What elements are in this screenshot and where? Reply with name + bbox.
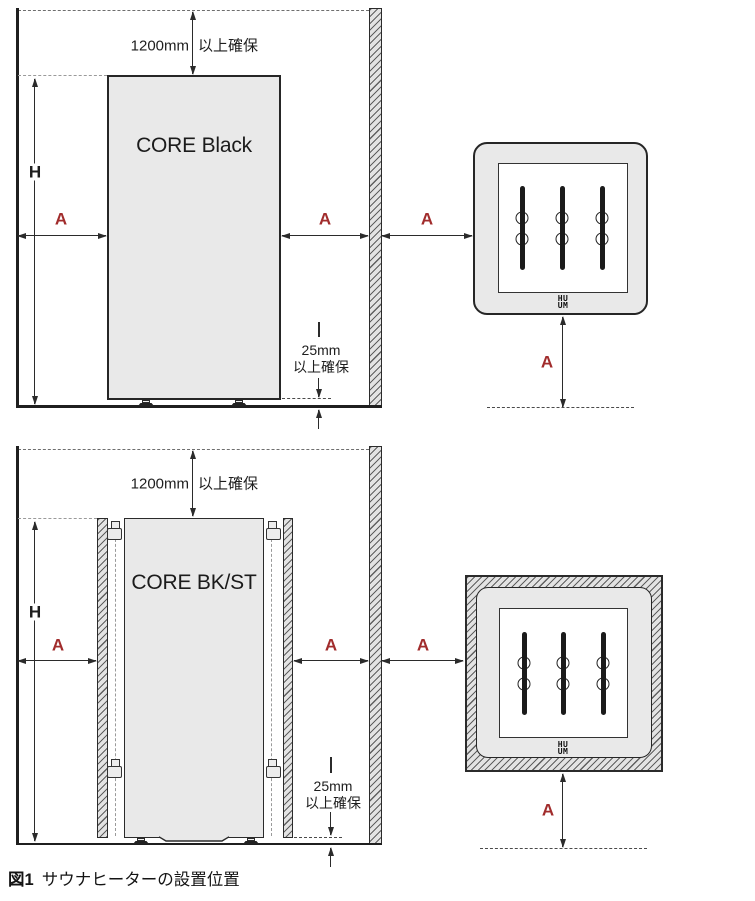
clearance-label: A — [325, 637, 337, 654]
room-left-wall — [16, 446, 19, 845]
top-clearance-arrow — [192, 12, 193, 74]
foot-base — [133, 841, 149, 844]
clearance-arrow-wall-left — [18, 235, 106, 236]
heater-foot — [231, 400, 247, 407]
air-gap-line-right — [271, 524, 272, 836]
partition-wall-hatched — [369, 8, 382, 408]
heating-element — [520, 186, 525, 270]
heater-foot — [138, 400, 154, 407]
foot-stem — [235, 400, 243, 404]
floor-line — [16, 405, 382, 408]
bracket-block — [266, 766, 281, 778]
mounting-bracket — [265, 521, 281, 541]
heater-base-notch — [158, 836, 230, 844]
floor-clearance-value: 25mm — [302, 343, 341, 357]
heater-outline — [107, 75, 281, 400]
floor-clearance-leader — [330, 757, 331, 773]
air-gap-line-left — [115, 524, 116, 836]
foot-base — [243, 841, 259, 844]
clearance-label: A — [542, 802, 554, 819]
top-clearance-value: 1200mm — [131, 39, 189, 54]
floor-clearance-line — [282, 398, 331, 399]
heating-element — [601, 632, 606, 715]
foot-base — [231, 403, 247, 406]
heater-top-level-line — [18, 518, 97, 519]
clearance-arrow-wall-right — [294, 660, 368, 661]
foot-stem — [137, 838, 145, 841]
clearance-label: A — [417, 637, 429, 654]
height-dimension-arrow — [34, 522, 35, 841]
floor-clearance-line — [294, 837, 342, 838]
clearance-label: A — [55, 211, 67, 228]
side-shield-left — [97, 518, 108, 838]
foot-base — [138, 403, 154, 406]
top-clearance-arrow — [192, 451, 193, 516]
bracket-block — [107, 528, 122, 540]
height-dimension-label: H — [26, 604, 44, 621]
clearance-label: A — [421, 211, 433, 228]
floor-clearance-leader — [318, 322, 319, 337]
front-clearance-arrow — [562, 774, 563, 847]
partition-wall-hatched — [369, 446, 382, 845]
height-dimension-label: H — [26, 164, 44, 181]
heater-top-level-line — [18, 75, 107, 76]
bracket-block — [266, 528, 281, 540]
heater-foot — [133, 838, 149, 844]
foot-stem — [142, 400, 150, 404]
bench-edge-line — [487, 407, 634, 408]
top-clearance-note: 以上確保 — [198, 39, 258, 54]
clearance-arrow-wall-right — [282, 235, 368, 236]
floor-clearance-note: 以上確保 — [305, 796, 361, 810]
side-shield-right — [283, 518, 294, 838]
clearance-label: A — [541, 354, 553, 371]
huum-logo: HU UM — [558, 296, 568, 309]
figure-1-sauna-heater-installation: CORE Black 1200mm 以上確保 H A A A 25mm 以上確保 — [0, 0, 755, 901]
top-clearance-note: 以上確保 — [198, 477, 258, 492]
heater-foot — [243, 838, 259, 844]
figure-caption: 図1 サウナヒーターの設置位置 — [8, 866, 240, 890]
heater-outline — [124, 518, 264, 838]
heater-label: CORE BK/ST — [131, 571, 256, 595]
clearance-arrow-beyond-wall — [382, 660, 463, 661]
foot-stem — [247, 838, 255, 841]
huum-logo-bottom: UM — [558, 749, 568, 756]
bracket-block — [107, 766, 122, 778]
floor-clearance-value: 25mm — [314, 779, 353, 793]
floor-clearance-arrow-up — [330, 848, 331, 867]
room-left-wall — [16, 8, 19, 408]
figure-caption-title: サウナヒーターの設置位置 — [42, 866, 240, 890]
clearance-label: A — [52, 637, 64, 654]
mounting-bracket — [107, 759, 123, 779]
clearance-arrow-wall-left — [18, 660, 96, 661]
floor-clearance-arrow-up — [318, 410, 319, 430]
heating-element — [561, 632, 566, 715]
floor-clearance-arrow-down — [318, 378, 319, 397]
huum-logo: HU UM — [558, 742, 568, 755]
heating-element — [600, 186, 605, 270]
front-clearance-arrow — [562, 317, 563, 407]
floor-clearance-note: 以上確保 — [293, 360, 349, 374]
clearance-arrow-beyond-wall — [382, 235, 472, 236]
figure-caption-number: 図1 — [8, 866, 34, 890]
top-clearance-value: 1200mm — [131, 477, 189, 492]
floor-clearance-arrow-down — [330, 812, 331, 835]
heater-label: CORE Black — [136, 134, 252, 158]
height-dimension-arrow — [34, 79, 35, 404]
mounting-bracket — [265, 759, 281, 779]
bench-edge-line — [480, 848, 647, 849]
huum-logo-bottom: UM — [558, 303, 568, 310]
heating-element — [522, 632, 527, 715]
mounting-bracket — [107, 521, 123, 541]
heating-element — [560, 186, 565, 270]
clearance-label: A — [319, 211, 331, 228]
